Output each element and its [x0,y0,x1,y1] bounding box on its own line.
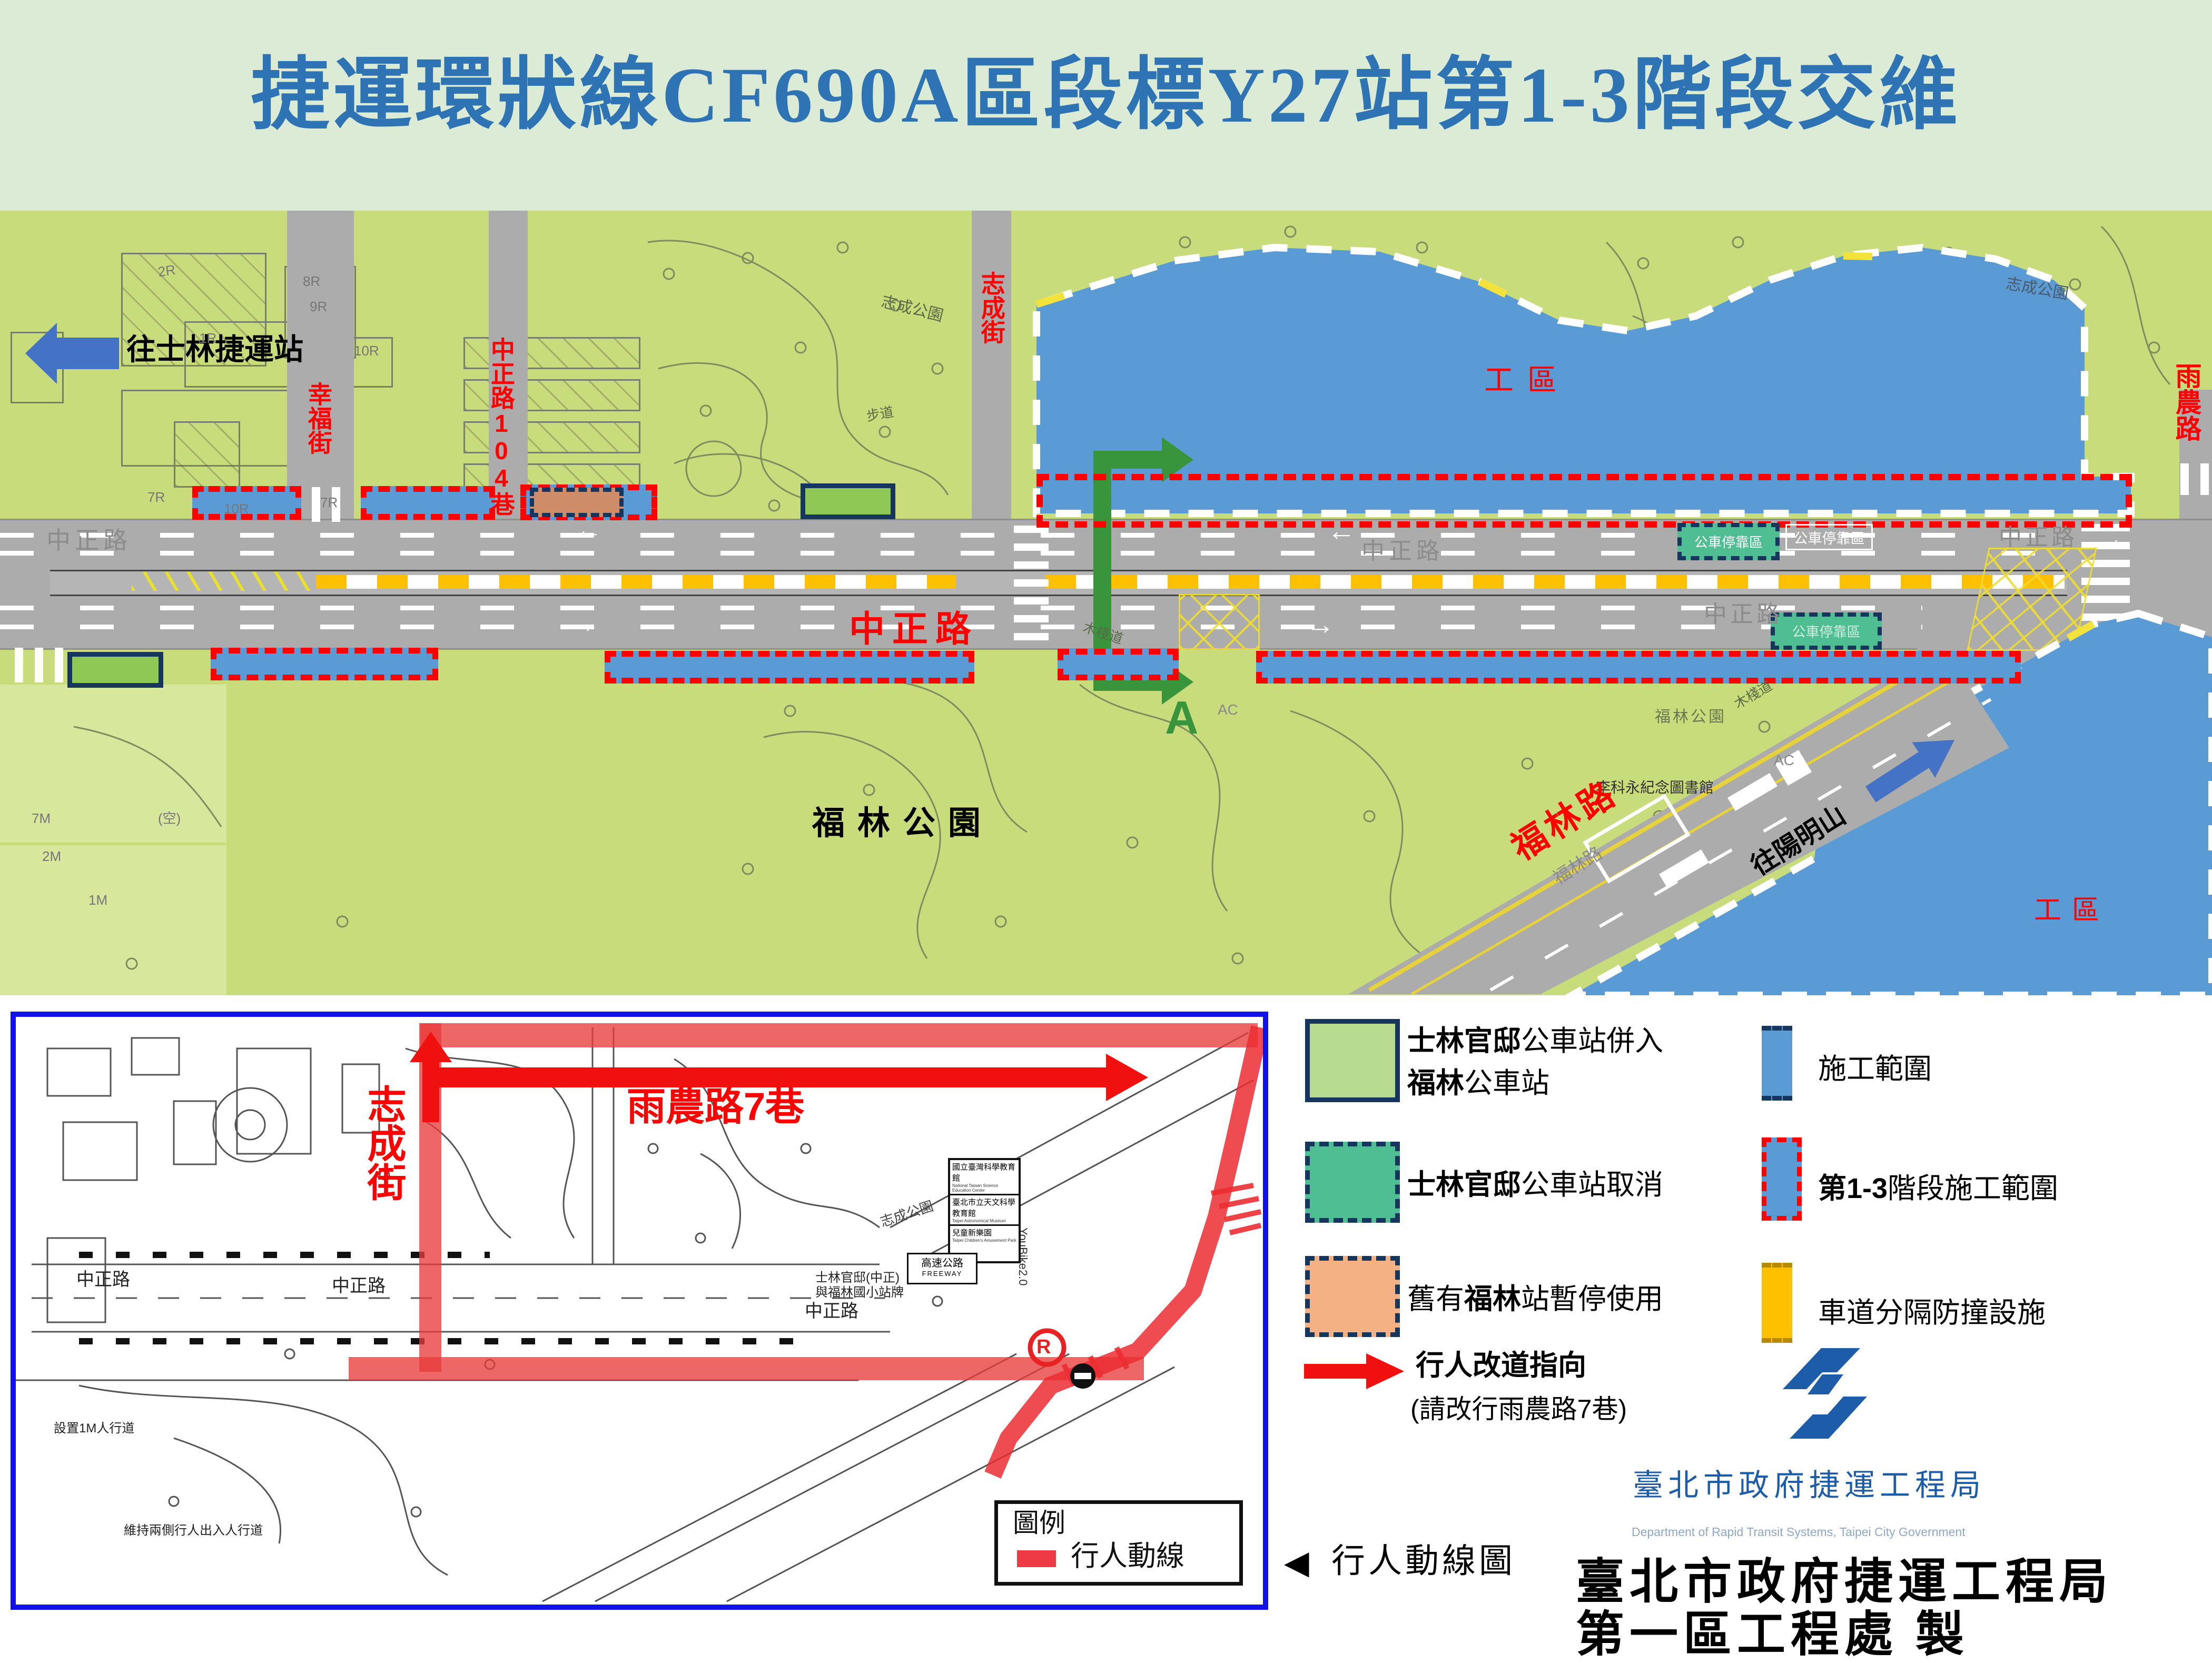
inset-r-mark: R [1036,1336,1051,1359]
legend-diversion-sub: (請改行雨農路7巷) [1410,1388,1627,1426]
bus-stop-cancelled-box: 公車停靠區 [1771,612,1882,650]
sign-line: 兒童新樂園 [952,1227,1016,1238]
inset-busstop-note: 士林官邸(中正) 與福林國小站牌 [815,1271,904,1300]
legend-merged-rest1: 公車站併入 [1521,1025,1663,1057]
plot-label: 7R [147,490,165,506]
diversion-arrow-icon [1304,1353,1409,1390]
inset-yunong7-label: 雨農路7巷 [627,1084,804,1129]
inset-note-ped: 維持兩側行人出入人行道 [124,1523,263,1538]
inset-legend-item-label: 行人動線 [1071,1540,1184,1572]
plot-label: (空) [158,811,181,827]
phase-strip [1256,651,2021,684]
dorts-name-eng: Department of Rapid Transit Systems, Tai… [1632,1525,1966,1539]
fulin-park-label: 福林公園 [812,805,993,842]
merged-stop-swatch [1305,1019,1400,1102]
inset-zhongzheng-label: 中正路 [76,1270,130,1290]
inset-legend-box: 圖例 行人動線 [994,1500,1243,1586]
work-zone-label: 工區 [1484,363,1571,397]
inset-sign-box: 國立臺灣科學教育館 National Taiwan Science Educat… [948,1158,1021,1263]
old-fulin-station-box [530,488,624,517]
legend-cancelled-label: 士林官邸公車站取消 [1407,1161,1663,1203]
traffic-maintenance-slide: { "title": "捷運環狀線CF690A區段標Y27站第1-3階段交維",… [0,0,2212,1659]
sign-line-en: National Taiwan Science Education Center [952,1183,1016,1193]
phase-strip [1058,649,1179,680]
inset-busstop-ticks [79,1255,806,1341]
plot-label: 9R [310,299,327,315]
barrier-swatch [1762,1263,1792,1343]
route-hatch [1064,1185,1261,1385]
legend-merged-label-line2: 福林公車站 [1407,1060,1549,1101]
merged-bus-stop-box [67,652,163,688]
legend-merged-label-line1: 士林官邸公車站併入 [1407,1017,1663,1059]
zhongzheng-road-label-red: 中正路 [849,609,979,650]
footer-agency-line2: 第一區工程處 製 [1576,1607,1969,1663]
zhongzheng-road-label: 中正路 [1999,524,2078,551]
bus-stop-cancelled-box: 公車停靠區 [1677,523,1780,560]
plot-label: 2R [157,262,176,280]
plot-label: 2M [42,849,61,865]
zhongzheng-road-label: 中正路 [46,527,132,555]
construction-swatch [1762,1026,1792,1101]
pedestrian-map-pointer-icon: ◀ [1284,1544,1309,1581]
fulin-park-label-small: 福林公園 [1655,708,1726,727]
zhicheng-street-label: 志成街 [977,271,1005,344]
inset-freeway-box: 高速公路 FREEWAY [907,1253,977,1284]
legend-old-rest: 站暫停使用 [1521,1283,1663,1315]
pedestrian-flow-swatch [1017,1550,1056,1567]
plot-label: 8R [303,274,320,290]
route-a-label: A [1165,691,1199,744]
plot-label: 10R [354,343,379,359]
plot-label: 7R [320,495,338,511]
legend-merged-rest2: 公車站 [1464,1067,1549,1099]
inset-note-1m: 設置1M人行道 [54,1421,134,1436]
plot-label: 1R [199,331,216,347]
plot-label: AC [1218,701,1238,718]
work-zone-label: 工區 [2034,895,2110,927]
pedestrian-detail-map: 志成街 雨農路7巷 中正路 中正路 中正路 志成公園 設置1M人行道 維持兩側行… [11,1012,1268,1610]
plot-label: 1M [88,893,107,908]
legend-merged-bold1: 士林官邸 [1407,1025,1521,1057]
legend-old-bold: 福林 [1464,1283,1521,1315]
plot-label: AC [1774,752,1794,769]
zhongzheng-road-label: 中正路 [1361,538,1444,565]
legend-diversion-title: 行人改道指向 [1416,1342,1586,1383]
legend-phase-rest: 階段施工範圍 [1888,1173,2058,1204]
phase-swatch [1762,1137,1802,1221]
old-station-swatch [1305,1256,1400,1337]
cancelled-stop-swatch [1305,1142,1400,1223]
legend-construction-label: 施工範圍 [1818,1045,1932,1087]
legend-barrier-label: 車道分隔防撞設施 [1818,1289,2046,1331]
legend-merged-bold2: 福林 [1407,1067,1464,1099]
phase-strip [211,648,438,680]
dorts-logo-icon [1770,1338,1880,1451]
phase-zone-border [1036,474,2132,528]
pedestrian-map-caption: 行人動線圖 [1331,1542,1516,1581]
inset-busstop-note-line1: 士林官邸(中正) [815,1271,904,1285]
yunong-road-label: 雨農路 [2171,362,2201,441]
phase-strip [605,651,974,684]
legend-cancelled-bold: 士林官邸 [1407,1169,1521,1201]
xingfu-street-label: 幸福街 [304,382,332,454]
sign-line: 臺北市立天文科學教育館 [952,1196,1016,1219]
plot-label: 10R [224,501,249,517]
to-shilin-arrow-icon [25,323,119,384]
freeway-label: 高速公路 [908,1254,976,1270]
lane104-label: 中正路104巷 [487,337,515,516]
inset-zhicheng-street-label: 志成街 [361,1084,406,1201]
inset-legend-title: 圖例 [1013,1508,1065,1539]
main-traffic-map: ← ← ← → → → [0,211,2212,995]
sign-line-en: Taipei Astronomical Museum [952,1219,1016,1223]
map-artwork [0,211,2212,995]
dorts-name-cht: 臺北市政府捷運工程局 [1633,1468,1986,1503]
freeway-label-en: FREEWAY [908,1270,976,1278]
legend-phase-bold: 第1-3 [1818,1173,1888,1204]
legend-phase-label: 第1-3階段施工範圍 [1818,1165,2058,1206]
inset-zhongzheng-label: 中正路 [805,1301,858,1322]
pedestrian-route [349,1023,1261,1475]
page-title: 捷運環狀線CF690A區段標Y27站第1-3階段交維 [0,50,2212,141]
zhongzheng-road-label: 中正路 [1704,601,1783,628]
sign-line: 國立臺灣科學教育館 [952,1161,1016,1183]
inset-busstop-note-line2: 與福林國小站牌 [815,1285,904,1300]
legend-old-label: 舊有福林站暫停使用 [1407,1275,1663,1317]
legend-old-pre: 舊有 [1407,1283,1464,1315]
title-band: 捷運環狀線CF690A區段標Y27站第1-3階段交維 [0,0,2212,211]
footer-agency-line1: 臺北市政府捷運工程局 [1576,1555,2113,1610]
sign-line-en: Taipei Children's Amusement Park [952,1238,1016,1243]
phase-strip [361,486,495,520]
legend-cancelled-rest: 公車站取消 [1521,1169,1663,1201]
merged-bus-stop-box [801,483,895,519]
plot-label: 7M [32,811,51,827]
bus-bay-label: 公車停靠區 [1785,524,1873,550]
inset-zhongzheng-label: 中正路 [332,1276,386,1296]
